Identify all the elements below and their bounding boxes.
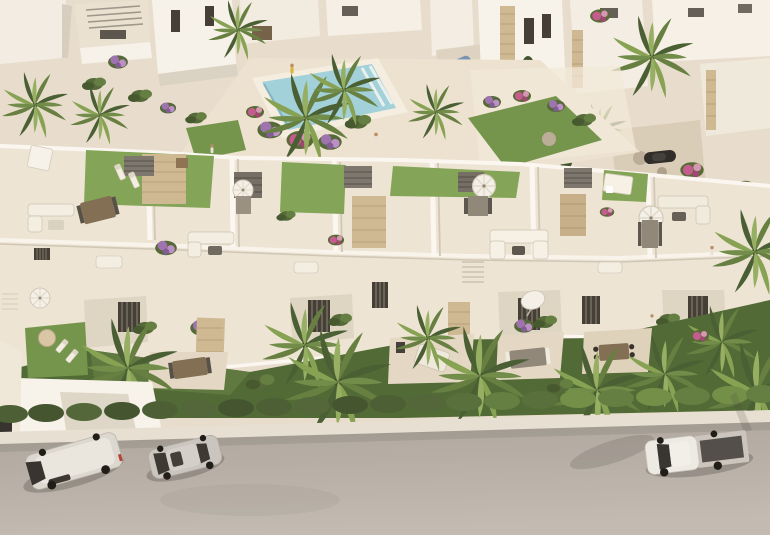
sunlight-wash: [0, 0, 770, 535]
render-canvas: [0, 0, 770, 535]
aerial-render: [0, 0, 770, 535]
